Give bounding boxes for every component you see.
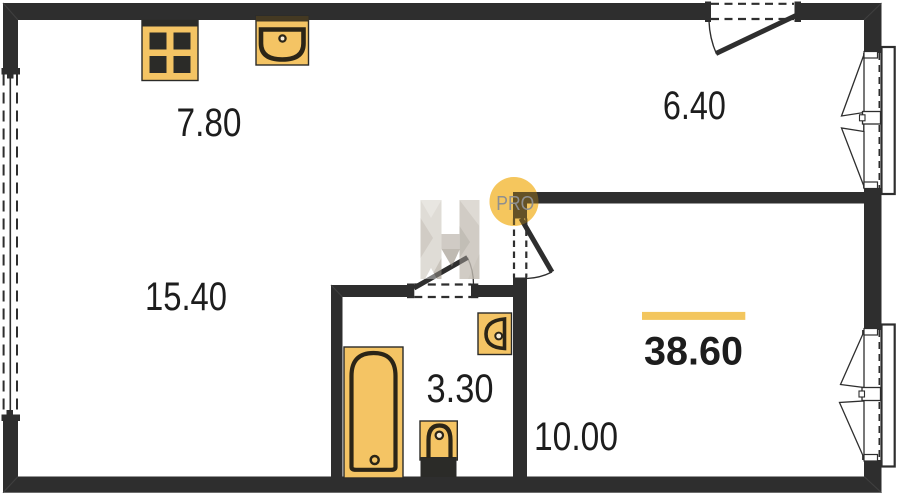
svg-text:PRO: PRO: [496, 192, 534, 215]
svg-text:6.40: 6.40: [663, 84, 726, 128]
svg-text:7.80: 7.80: [177, 101, 242, 145]
svg-text:10.00: 10.00: [534, 415, 618, 459]
svg-text:15.40: 15.40: [145, 275, 227, 319]
svg-text:38.60: 38.60: [644, 330, 743, 374]
svg-text:3.30: 3.30: [427, 367, 494, 411]
